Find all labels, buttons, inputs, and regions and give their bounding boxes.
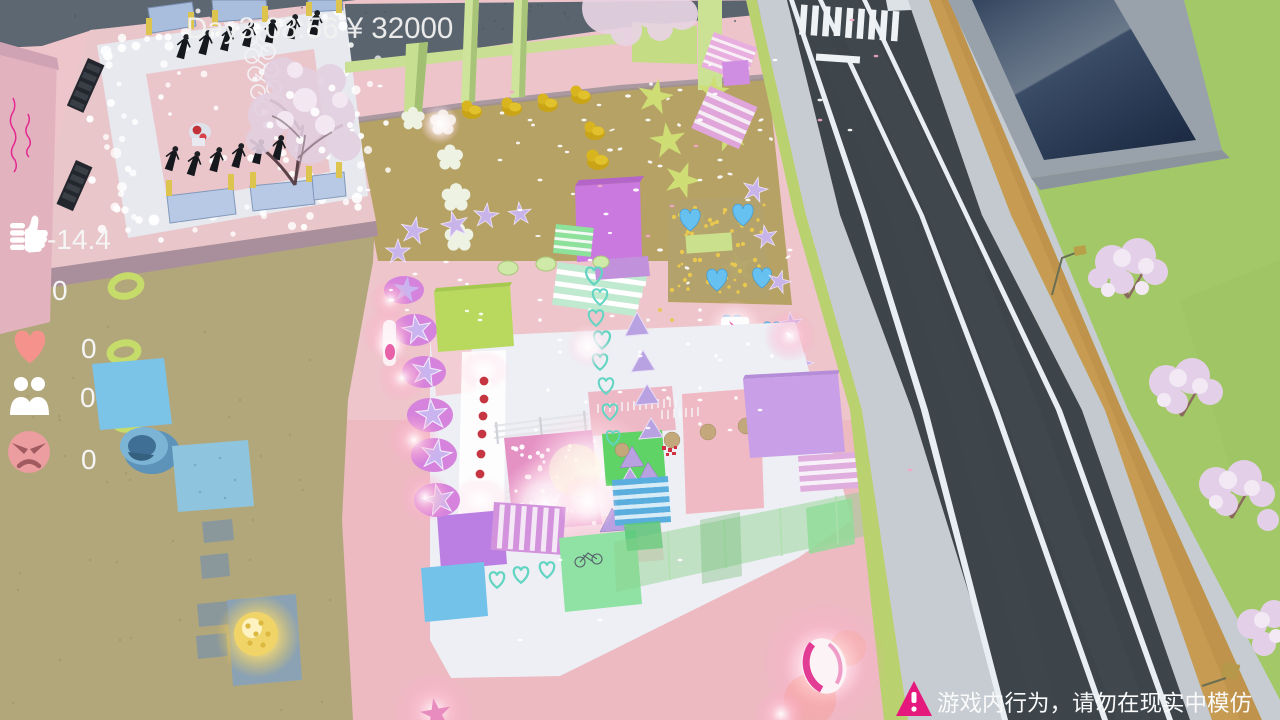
svg-text:Day3-08:56 ¥ 32000: Day3-08:56 ¥ 32000 (186, 12, 453, 45)
svg-text:0: 0 (52, 275, 68, 306)
svg-text:0: 0 (80, 382, 96, 413)
svg-text:0: 0 (81, 333, 97, 364)
svg-text:游戏内行为，请勿在现实中模仿: 游戏内行为，请勿在现实中模仿 (937, 691, 1252, 716)
svg-text:-14.4: -14.4 (47, 224, 111, 255)
svg-text:0: 0 (81, 444, 97, 475)
